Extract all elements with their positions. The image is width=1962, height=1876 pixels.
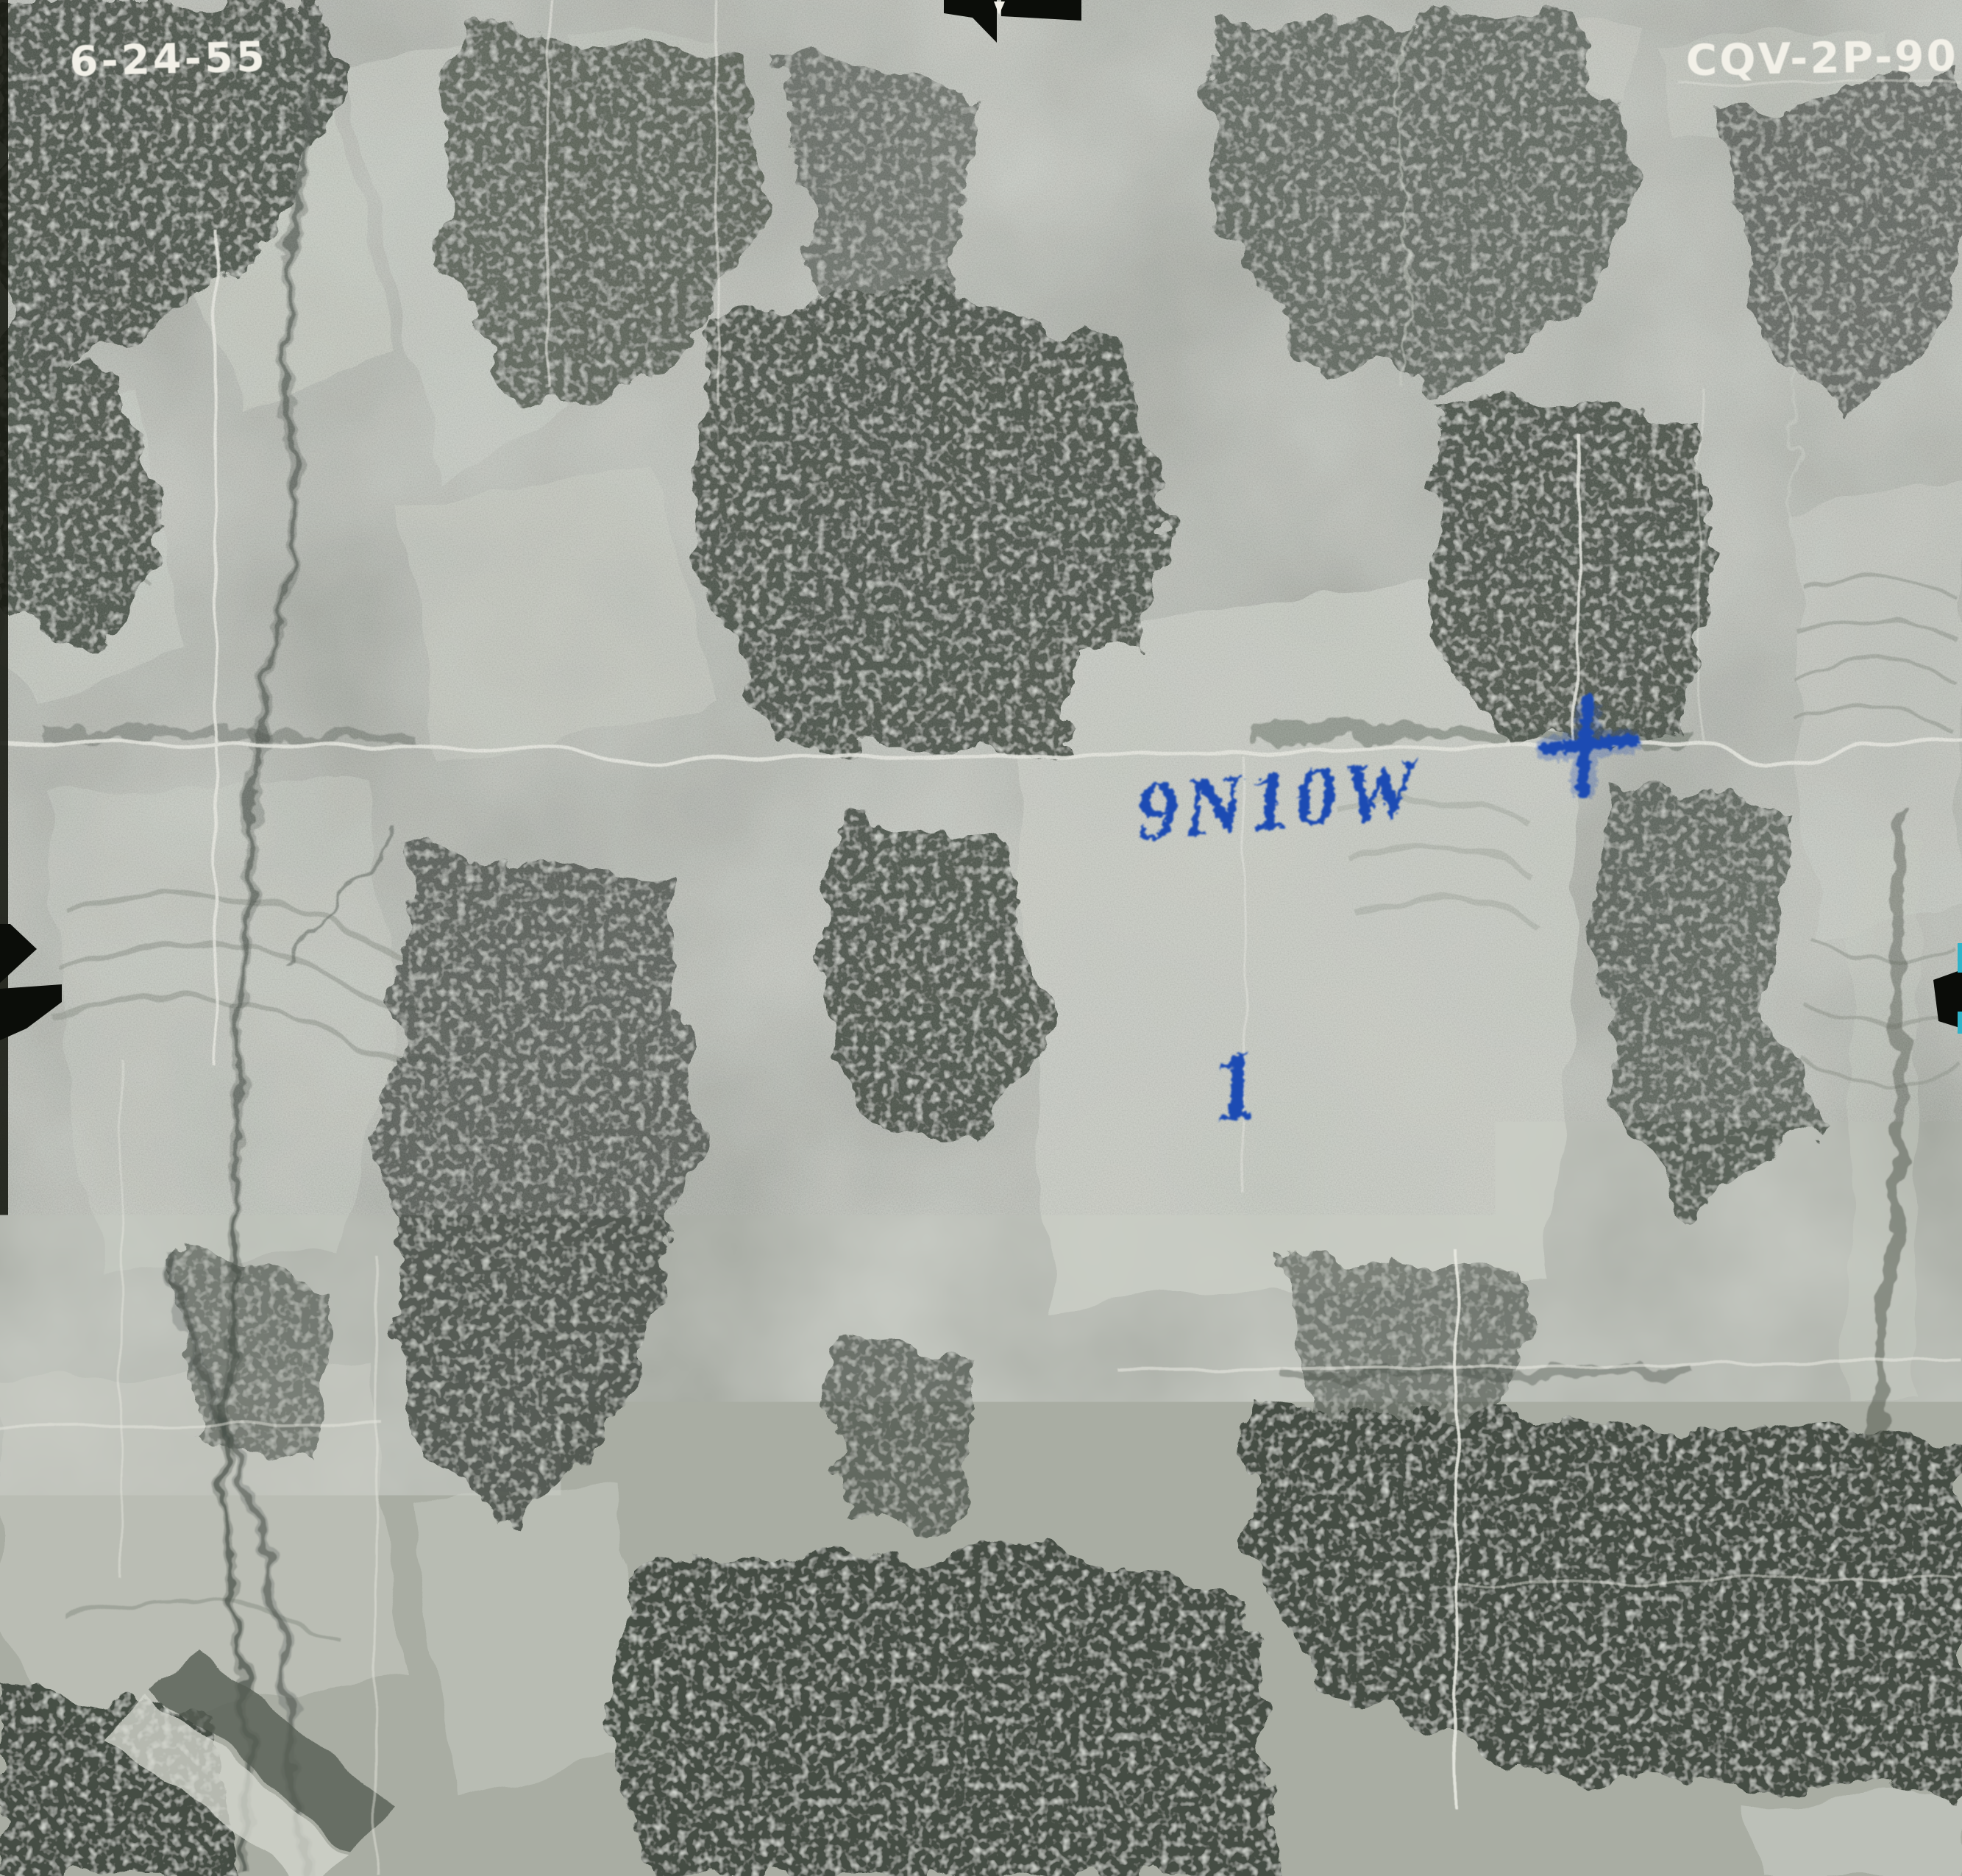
scan-edge-cyan-strip (1958, 1012, 1962, 1034)
aerial-photo-canvas: 6-24-55 CQV-2P-90 9N10W 1 (0, 0, 1962, 1876)
photo-date-label: 6-24-55 (69, 33, 269, 86)
scan-edge-cyan-strip (1958, 943, 1962, 973)
aerial-photo: 6-24-55 CQV-2P-90 9N10W 1 (0, 0, 1962, 1876)
film-grain (0, 0, 1962, 1876)
photo-id-label: CQV-2P-90 (1685, 31, 1958, 85)
